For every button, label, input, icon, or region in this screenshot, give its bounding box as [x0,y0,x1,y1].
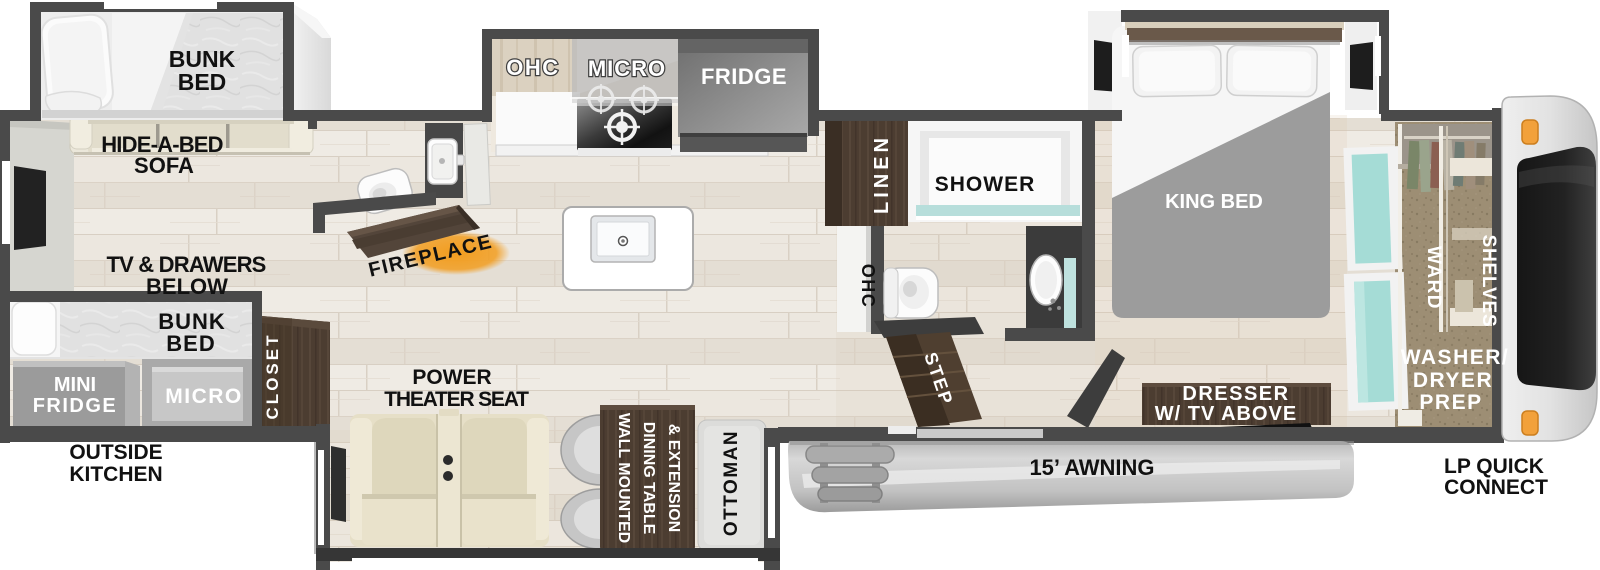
svg-text:MICRO: MICRO [588,56,666,81]
svg-text:WALL MOUNTED: WALL MOUNTED [615,413,632,543]
svg-text:DRESSER: DRESSER [1182,383,1289,405]
svg-text:W/ TV ABOVE: W/ TV ABOVE [1155,403,1297,425]
svg-text:THEATER SEAT: THEATER SEAT [384,388,529,411]
svg-text:BED: BED [178,69,227,95]
svg-text:WARD: WARD [1423,246,1444,310]
svg-text:POWER: POWER [412,366,491,389]
svg-text:OUTSIDE: OUTSIDE [69,441,162,464]
svg-text:BELOW: BELOW [146,274,228,299]
svg-text:15’ AWNING: 15’ AWNING [1029,455,1154,480]
svg-text:MINI: MINI [54,374,96,396]
svg-text:FRIDGE: FRIDGE [33,395,118,417]
svg-text:SOFA: SOFA [134,153,194,178]
svg-text:BED: BED [166,331,215,356]
svg-text:SHOWER: SHOWER [935,173,1036,196]
svg-text:LINEN: LINEN [871,134,893,214]
svg-text:KING BED: KING BED [1165,191,1263,213]
svg-text:OTTOMAN: OTTOMAN [721,430,742,536]
svg-text:MICRO: MICRO [165,385,243,408]
svg-text:CLOSET: CLOSET [263,333,282,420]
svg-text:LP QUICK: LP QUICK [1444,455,1544,478]
svg-text:SHELVES: SHELVES [1478,235,1499,328]
svg-text:PREP: PREP [1419,391,1482,414]
svg-text:& EXTENSION: & EXTENSION [665,424,682,532]
svg-text:CONNECT: CONNECT [1444,476,1548,499]
svg-text:WASHER/: WASHER/ [1401,346,1510,369]
svg-text:FRIDGE: FRIDGE [701,64,787,89]
svg-text:DRYER: DRYER [1413,369,1493,392]
svg-text:OHC: OHC [506,55,559,80]
svg-text:OHC: OHC [858,264,878,309]
svg-text:KITCHEN: KITCHEN [69,463,162,486]
svg-text:DINING TABLE: DINING TABLE [640,422,657,535]
